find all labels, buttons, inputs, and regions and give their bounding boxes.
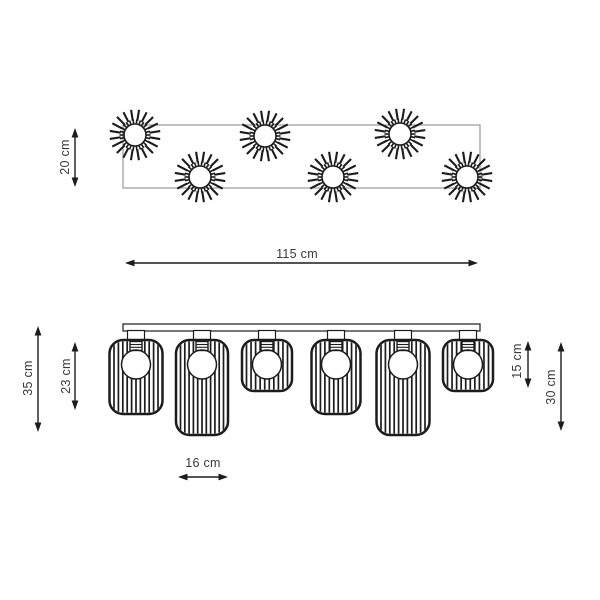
front-view bbox=[110, 324, 494, 435]
shade-core-circle bbox=[254, 125, 276, 147]
shade-core-circle bbox=[456, 166, 478, 188]
shade-core-circle bbox=[189, 166, 211, 188]
front-shade-2 bbox=[176, 331, 228, 436]
light-bulb bbox=[322, 342, 351, 380]
arrowhead-up-icon bbox=[35, 326, 42, 336]
medium-shade-height-label: 23 cm bbox=[59, 358, 73, 394]
arrowhead-up-icon bbox=[72, 342, 79, 352]
arrowhead-down-icon bbox=[525, 379, 532, 389]
shade-core-circle bbox=[389, 123, 411, 145]
arrowhead-down-icon bbox=[72, 178, 79, 188]
front-shade-6 bbox=[443, 331, 493, 392]
light-bulb bbox=[454, 342, 483, 380]
arrowhead-down-icon bbox=[35, 423, 42, 433]
shade-core-circle bbox=[322, 166, 344, 188]
top-view-shade-6 bbox=[442, 152, 492, 202]
arrowhead-down-icon bbox=[558, 422, 565, 432]
top-view-depth-label: 20 cm bbox=[58, 139, 72, 175]
overall-height-label: 35 cm bbox=[21, 360, 35, 396]
top-view bbox=[110, 109, 492, 202]
ceiling-bar bbox=[123, 324, 480, 331]
arrowhead-right-icon bbox=[219, 474, 229, 481]
top-view-shade-5 bbox=[308, 152, 358, 202]
top-view-shade-1 bbox=[110, 110, 160, 160]
arrowhead-up-icon bbox=[72, 128, 79, 138]
front-shade-4 bbox=[312, 331, 361, 415]
front-shade-3 bbox=[242, 331, 292, 392]
top-view-width-label: 115 cm bbox=[276, 247, 318, 261]
arrowhead-right-icon bbox=[469, 260, 479, 267]
top-view-shade-4 bbox=[175, 152, 225, 202]
lamp-dimension-diagram: 20 cm 115 cm 35 cm 23 cm 15 cm 30 cm 16 … bbox=[0, 0, 600, 600]
light-bulb bbox=[188, 342, 217, 380]
light-bulb bbox=[253, 342, 282, 380]
top-view-shade-2 bbox=[240, 111, 290, 161]
light-bulb bbox=[122, 342, 151, 380]
front-shade-1 bbox=[110, 331, 163, 415]
diagram-canvas bbox=[0, 0, 600, 600]
light-bulb bbox=[389, 342, 418, 380]
dimension-small-shade-height bbox=[525, 341, 532, 388]
arrowhead-up-icon bbox=[558, 342, 565, 352]
top-view-shade-3 bbox=[375, 109, 425, 159]
small-shade-height-label: 15 cm bbox=[510, 343, 524, 379]
arrowhead-up-icon bbox=[525, 341, 532, 351]
dimension-tall-shade-height bbox=[558, 342, 565, 431]
arrowhead-left-icon bbox=[125, 260, 135, 267]
top-view-frame bbox=[123, 125, 480, 188]
shade-core-circle bbox=[124, 124, 146, 146]
arrowhead-down-icon bbox=[72, 401, 79, 411]
shade-width-label: 16 cm bbox=[185, 456, 221, 470]
arrowhead-left-icon bbox=[178, 474, 188, 481]
dimension-top-depth bbox=[72, 128, 79, 187]
tall-shade-height-label: 30 cm bbox=[544, 369, 558, 405]
front-shade-5 bbox=[377, 331, 430, 436]
dimension-overall-height bbox=[35, 326, 42, 432]
dimension-shade-width bbox=[178, 474, 228, 481]
